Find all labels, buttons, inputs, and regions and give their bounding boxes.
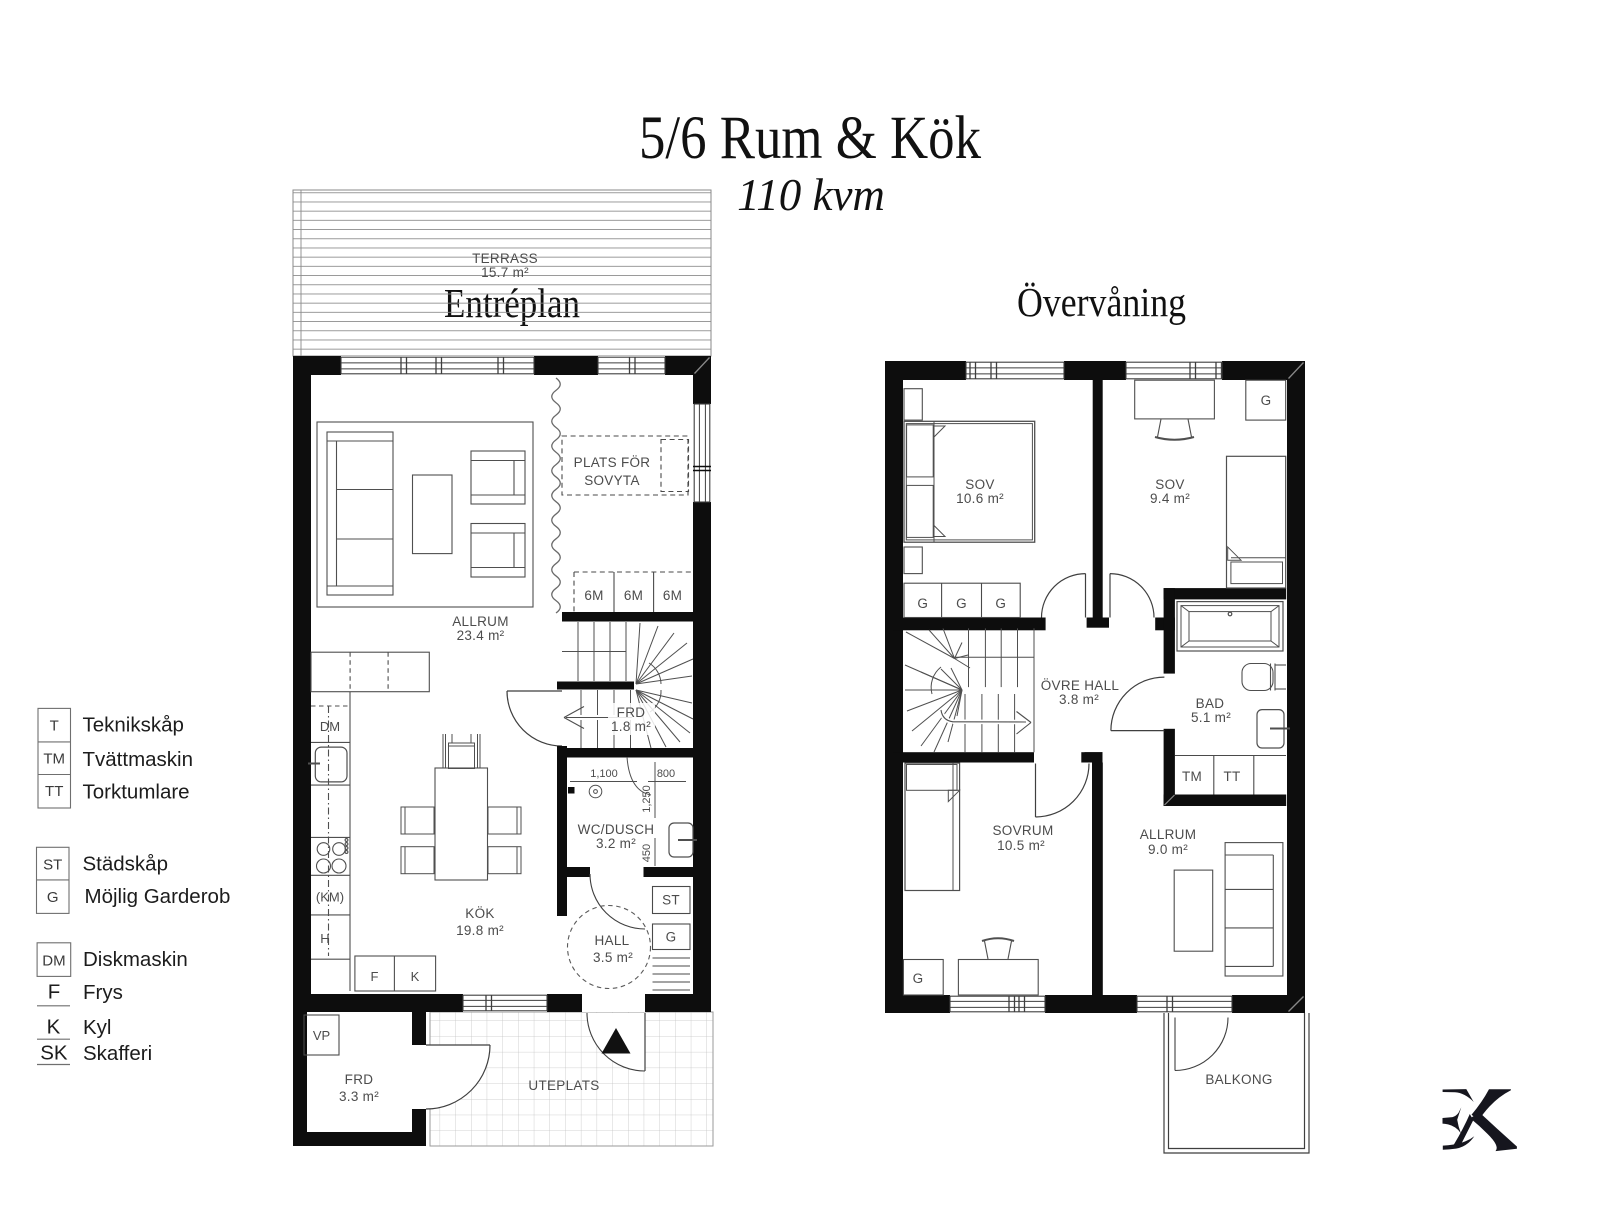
svg-text:1,250: 1,250: [641, 785, 653, 813]
svg-text:T: T: [50, 718, 59, 735]
svg-text:9.4 m²: 9.4 m²: [1150, 491, 1190, 506]
svg-text:6M: 6M: [584, 588, 603, 603]
svg-text:800: 800: [657, 768, 675, 780]
svg-text:5.1 m²: 5.1 m²: [1191, 710, 1231, 725]
svg-text:PLATS FÖR: PLATS FÖR: [574, 455, 651, 470]
svg-text:H: H: [320, 931, 329, 946]
svg-text:G: G: [1261, 393, 1272, 408]
svg-text:1.8 m²: 1.8 m²: [611, 719, 651, 734]
svg-text:9.0 m²: 9.0 m²: [1148, 842, 1188, 857]
svg-text:Övervåning: Övervåning: [1017, 279, 1186, 325]
svg-text:6M: 6M: [624, 588, 643, 603]
svg-text:1,100: 1,100: [590, 768, 618, 780]
svg-text:ALLRUM: ALLRUM: [1140, 827, 1197, 842]
svg-text:23.4 m²: 23.4 m²: [457, 628, 505, 643]
svg-text:FRD: FRD: [617, 705, 646, 720]
svg-text:G: G: [956, 596, 967, 611]
svg-text:ÖVRE HALL: ÖVRE HALL: [1041, 678, 1120, 693]
svg-text:G: G: [913, 971, 924, 986]
svg-text:BAD: BAD: [1196, 696, 1225, 711]
svg-text:VP: VP: [313, 1028, 330, 1043]
svg-text:10.5 m²: 10.5 m²: [997, 838, 1045, 853]
svg-text:DM: DM: [320, 719, 340, 734]
svg-text:TERRASS: TERRASS: [472, 251, 538, 266]
svg-text:19.8 m²: 19.8 m²: [456, 923, 504, 938]
svg-text:Diskmaskin: Diskmaskin: [83, 948, 188, 971]
svg-text:TT: TT: [1223, 769, 1240, 784]
svg-text:5/6 Rum & Kök: 5/6 Rum & Kök: [639, 105, 981, 172]
svg-text:Städskåp: Städskåp: [83, 853, 168, 876]
svg-text:ALLRUM: ALLRUM: [452, 614, 509, 629]
svg-text:SOVYTA: SOVYTA: [584, 473, 640, 488]
svg-text:SOVRUM: SOVRUM: [992, 823, 1053, 838]
svg-text:6M: 6M: [663, 588, 682, 603]
svg-text:TT: TT: [45, 783, 63, 800]
svg-text:F: F: [371, 969, 379, 984]
svg-text:FRD: FRD: [345, 1072, 374, 1087]
svg-text:3.2 m²: 3.2 m²: [596, 836, 636, 851]
svg-text:450: 450: [641, 844, 653, 862]
svg-text:(KM): (KM): [316, 890, 344, 905]
svg-text:SOV: SOV: [1155, 477, 1184, 492]
svg-text:Frys: Frys: [83, 981, 123, 1004]
svg-text:WC/DUSCH: WC/DUSCH: [578, 822, 655, 837]
svg-text:G: G: [995, 596, 1006, 611]
svg-text:Kyl: Kyl: [83, 1016, 111, 1039]
svg-text:K: K: [47, 1016, 61, 1039]
svg-text:3.5 m²: 3.5 m²: [593, 950, 633, 965]
svg-text:SK: SK: [40, 1042, 68, 1065]
svg-text:ST: ST: [43, 857, 62, 874]
svg-text:15.7 m²: 15.7 m²: [481, 265, 529, 280]
svg-text:Teknikskåp: Teknikskåp: [83, 714, 184, 737]
svg-text:BALKONG: BALKONG: [1205, 1072, 1272, 1087]
svg-text:K: K: [411, 969, 420, 984]
svg-text:Skafferi: Skafferi: [83, 1042, 152, 1065]
svg-text:HALL: HALL: [595, 933, 630, 948]
svg-text:Tvättmaskin: Tvättmaskin: [83, 748, 194, 771]
svg-text:Möjlig Garderob: Möjlig Garderob: [85, 885, 231, 908]
svg-text:Torktumlare: Torktumlare: [83, 781, 190, 804]
svg-text:F: F: [48, 981, 61, 1004]
svg-text:UTEPLATS: UTEPLATS: [528, 1078, 599, 1093]
svg-text:G: G: [47, 889, 59, 906]
svg-text:KÖK: KÖK: [465, 906, 494, 921]
svg-text:TM: TM: [43, 751, 65, 768]
svg-text:ST: ST: [662, 893, 680, 908]
svg-text:3.8 m²: 3.8 m²: [1059, 692, 1099, 707]
svg-text:10.6 m²: 10.6 m²: [956, 491, 1004, 506]
svg-text:TM: TM: [1182, 769, 1202, 784]
svg-text:SOV: SOV: [965, 477, 994, 492]
svg-text:110 kvm: 110 kvm: [737, 170, 885, 220]
svg-text:3.3 m²: 3.3 m²: [339, 1089, 379, 1104]
svg-text:G: G: [917, 596, 928, 611]
svg-text:DM: DM: [42, 953, 65, 970]
svg-text:G: G: [666, 930, 677, 945]
